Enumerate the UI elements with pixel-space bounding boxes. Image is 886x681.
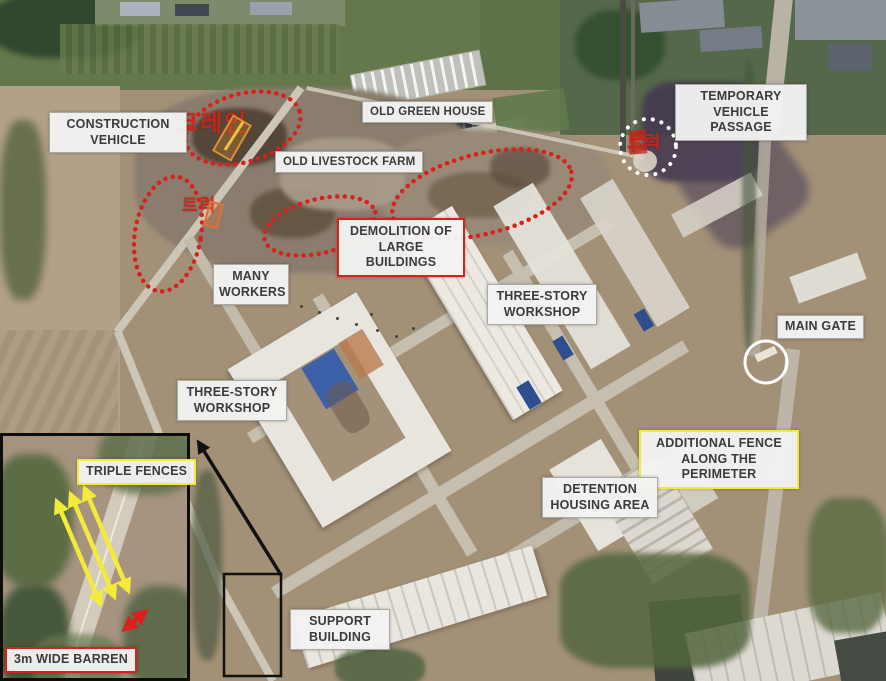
tree-cluster xyxy=(335,648,425,681)
roof xyxy=(699,26,762,52)
label-temporary-vehicle-passage: TEMPORARY VEHICLE PASSAGE xyxy=(675,84,807,141)
rubble-patch xyxy=(280,138,405,210)
label-main-gate: MAIN GATE xyxy=(777,315,864,339)
tree-cluster xyxy=(808,498,886,633)
label-3m-wide-barren: 3m WIDE BARREN xyxy=(5,647,137,673)
building xyxy=(789,253,866,304)
roof xyxy=(175,4,209,16)
tree-cluster xyxy=(0,454,73,586)
worker-specks xyxy=(300,305,303,308)
label-support-building: SUPPORT BUILDING xyxy=(290,609,390,650)
roof xyxy=(795,0,886,40)
korean-label-truck-passage: 트럭 xyxy=(627,128,662,153)
label-three-story-workshop-left: THREE-STORY WORKSHOP xyxy=(177,380,287,421)
annotated-satellite-image: 크레인 트럭 트럭 CONSTRUCTION VEHICLE OLD GREEN… xyxy=(0,0,886,681)
roof xyxy=(120,2,160,16)
korean-label-truck-demolition: 트럭 xyxy=(182,191,217,216)
label-three-story-workshop-right: THREE-STORY WORKSHOP xyxy=(487,284,597,325)
perimeter-road xyxy=(219,587,277,681)
tree-cluster xyxy=(192,470,222,660)
field-rows xyxy=(60,24,340,74)
tree-cluster xyxy=(560,553,750,668)
label-triple-fences: TRIPLE FENCES xyxy=(77,459,196,485)
label-construction-vehicle: CONSTRUCTION VEHICLE xyxy=(49,112,187,153)
label-old-green-house: OLD GREEN HOUSE xyxy=(362,101,493,123)
label-many-workers: MANY WORKERS xyxy=(213,264,289,305)
roof xyxy=(828,44,872,70)
label-detention-housing-area: DETENTION HOUSING AREA xyxy=(542,477,658,518)
label-additional-fence: ADDITIONAL FENCE ALONG THE PERIMETER xyxy=(639,430,799,489)
railway-track xyxy=(620,0,626,152)
tree-cluster xyxy=(0,120,46,300)
debris-patch xyxy=(490,148,550,188)
label-demolition-of-large-buildings: DEMOLITION OF LARGE BUILDINGS xyxy=(337,218,465,277)
roof xyxy=(250,2,292,15)
label-old-livestock-farm: OLD LIVESTOCK FARM xyxy=(275,151,423,173)
concrete-pad xyxy=(633,150,657,172)
